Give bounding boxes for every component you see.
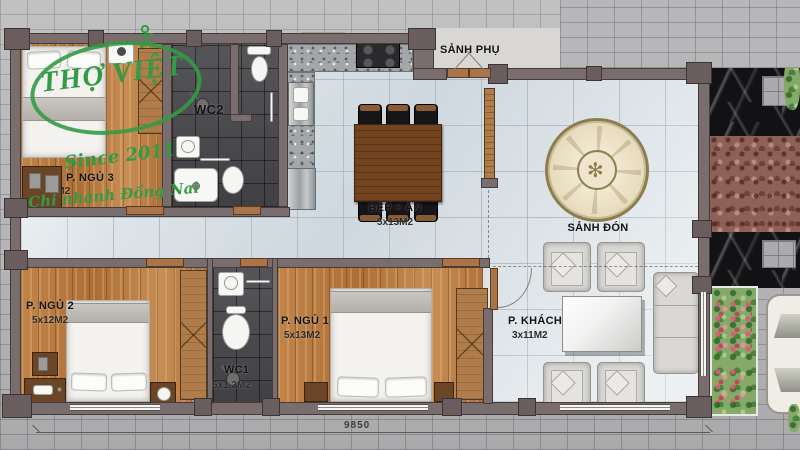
armchair bbox=[597, 242, 645, 292]
dimension-line bbox=[36, 432, 710, 433]
pilaster bbox=[4, 28, 30, 50]
wc2-towel-bar-v bbox=[270, 92, 273, 122]
wc2-partition-stub bbox=[230, 114, 252, 122]
label-living-size: 3x11M2 bbox=[512, 330, 548, 341]
label-main-hall: SẢNH ĐÓN bbox=[558, 222, 638, 234]
label-bedroom2-size: 5x12M2 bbox=[32, 315, 68, 326]
bedroom2-wardrobe bbox=[180, 270, 207, 400]
wc1-sink-basin bbox=[224, 276, 238, 290]
paver-apron bbox=[560, 0, 800, 68]
wall-wc1-bed1 bbox=[272, 258, 278, 404]
cooktop bbox=[356, 42, 400, 68]
reference-line-vertical bbox=[488, 190, 489, 258]
car-windshield bbox=[774, 314, 800, 338]
wc2-sink-basin bbox=[181, 140, 195, 153]
shrub-bottom-right bbox=[788, 404, 800, 432]
wc2-partition bbox=[230, 44, 239, 122]
red-gravel-bed bbox=[710, 136, 800, 232]
pilaster bbox=[692, 220, 712, 238]
dining-table bbox=[354, 124, 442, 202]
label-wc1-size: 5x1,3M2 bbox=[212, 380, 251, 391]
flower-cluster-2 bbox=[714, 368, 744, 402]
door-wc2 bbox=[233, 206, 261, 215]
wc1-towel-bar bbox=[246, 280, 270, 283]
label-side-hall: SẢNH PHỤ bbox=[440, 44, 500, 56]
pilaster bbox=[186, 30, 202, 47]
pilaster bbox=[4, 250, 28, 270]
wc2-oval-sink bbox=[222, 166, 244, 194]
door-bedroom2 bbox=[146, 258, 184, 267]
window-bedroom2 bbox=[70, 404, 160, 411]
pilaster bbox=[4, 198, 28, 218]
wall-top bbox=[10, 33, 433, 44]
bedroom1-nightstand-left bbox=[304, 382, 328, 402]
parked-car bbox=[766, 294, 800, 414]
pilaster bbox=[2, 394, 32, 418]
wc2-toilet-bowl bbox=[251, 56, 268, 82]
pilaster bbox=[408, 28, 436, 50]
car-rear-window bbox=[774, 368, 800, 392]
kitchen-sink bbox=[288, 82, 314, 126]
dimension-width-label: 9850 bbox=[344, 420, 370, 431]
bedroom2-side-table bbox=[150, 382, 176, 404]
sink-basin-1 bbox=[293, 87, 309, 103]
label-bedroom1-size: 5x13M2 bbox=[284, 330, 320, 341]
door-living bbox=[490, 268, 498, 310]
hall-medallion-motif: ✻ bbox=[587, 158, 604, 183]
flower-cluster-1 bbox=[714, 300, 752, 358]
floor-plan: ✻ bbox=[0, 0, 800, 450]
window-bedroom1 bbox=[318, 404, 428, 411]
fridge bbox=[286, 168, 316, 210]
pilaster bbox=[586, 66, 602, 81]
paver-slab-bottom bbox=[762, 240, 796, 268]
wc1-toilet-tank bbox=[226, 306, 246, 314]
door-bedroom3 bbox=[126, 206, 164, 215]
laptop bbox=[33, 385, 53, 395]
wall-bed1-living bbox=[483, 308, 493, 404]
label-bedroom3: P. NGỦ 3 bbox=[66, 172, 114, 184]
pilaster bbox=[488, 64, 508, 84]
wall-porch-stub bbox=[413, 68, 447, 80]
sink-basin-2 bbox=[293, 107, 309, 121]
label-living: P. KHÁCH bbox=[508, 315, 562, 327]
wc1-toilet-bowl bbox=[222, 314, 250, 350]
window-living bbox=[560, 404, 670, 411]
armchair bbox=[543, 242, 591, 292]
window-living-right bbox=[700, 292, 707, 376]
wall-wc2-kitchen bbox=[278, 44, 288, 207]
label-kitchen: BẾP + ĂN bbox=[352, 202, 438, 214]
hall-wood-screen bbox=[484, 88, 495, 180]
label-kitchen-size: 5x13M2 bbox=[352, 217, 438, 228]
label-bedroom1: P. NGỦ 1 bbox=[281, 315, 329, 327]
logo-figure-icon bbox=[134, 23, 157, 50]
pilaster bbox=[262, 398, 280, 416]
pilaster bbox=[686, 62, 712, 84]
pilaster bbox=[686, 396, 712, 418]
wall-left bbox=[10, 33, 21, 415]
bedroom1-bed bbox=[330, 288, 432, 402]
reference-line-horizontal bbox=[493, 266, 698, 267]
hall-wood-screen-cap bbox=[481, 178, 498, 188]
wc2-towel-bar-h bbox=[200, 158, 230, 161]
label-wc2: WC2 bbox=[194, 102, 224, 117]
pilaster bbox=[442, 398, 462, 416]
pilaster bbox=[194, 398, 212, 416]
pilaster bbox=[518, 398, 536, 416]
door-wc1 bbox=[240, 258, 268, 267]
bedroom2-bed bbox=[66, 300, 150, 402]
wc2-toilet-tank bbox=[247, 46, 271, 55]
bedroom2-dresser bbox=[32, 352, 58, 376]
coffee-table bbox=[562, 296, 642, 352]
pilaster bbox=[266, 30, 282, 47]
label-wc1: WC1 bbox=[224, 364, 249, 376]
door-bedroom1 bbox=[442, 258, 480, 267]
label-bedroom2: P. NGỦ 2 bbox=[26, 300, 74, 312]
